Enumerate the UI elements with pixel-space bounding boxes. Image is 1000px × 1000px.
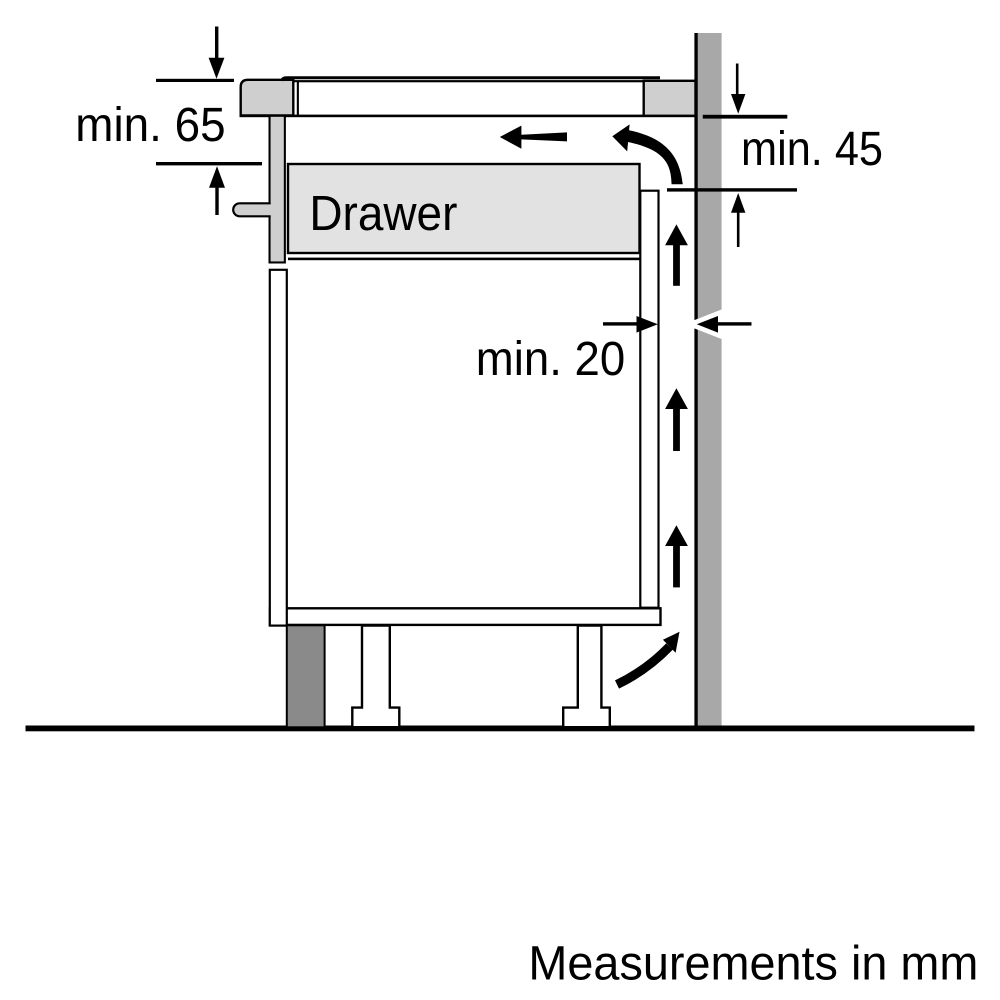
svg-text:Drawer: Drawer	[309, 186, 457, 241]
svg-text:min. 20: min. 20	[476, 332, 625, 386]
svg-text:min. 65: min. 65	[75, 98, 225, 152]
svg-text:min. 45: min. 45	[741, 122, 883, 176]
svg-text:Measurements in mm: Measurements in mm	[528, 936, 978, 990]
